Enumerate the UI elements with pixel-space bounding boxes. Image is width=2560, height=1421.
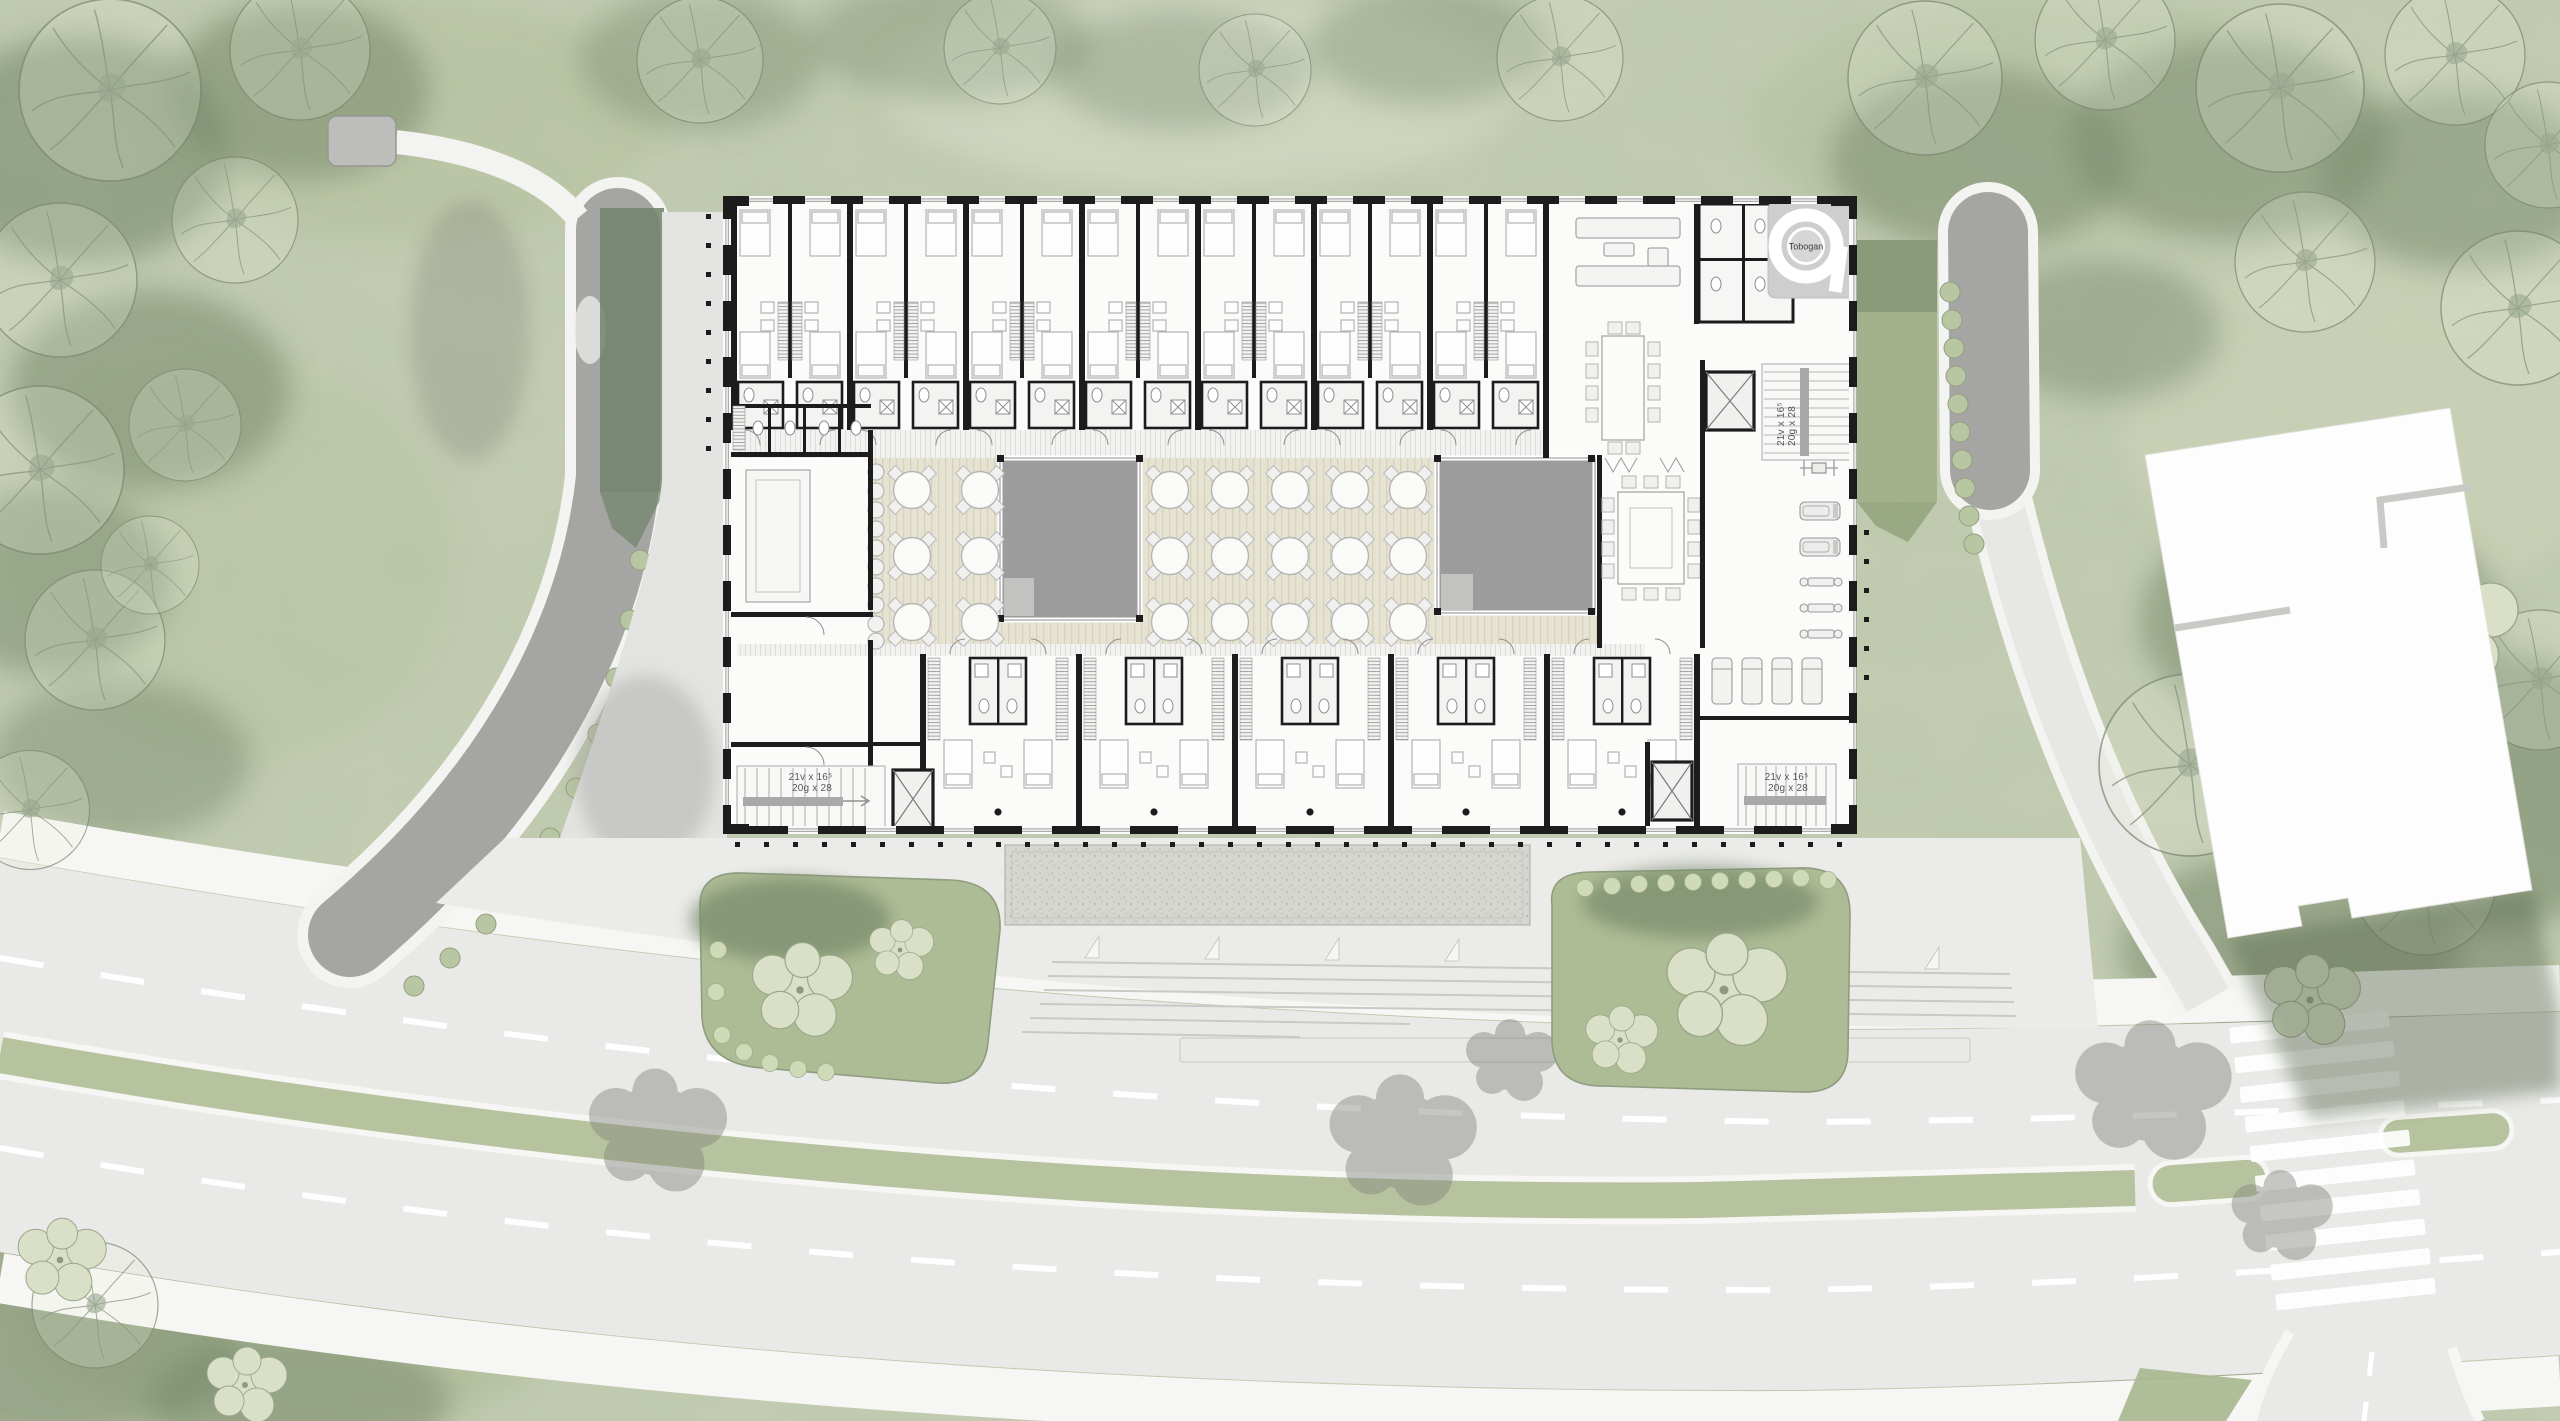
site-plan-canvas: Tobogan 21v x 16⁵ 20g x 28 — [0, 0, 2560, 1421]
stair-note-upper: 21v x 16⁵ 20g x 28 — [1776, 399, 1798, 446]
site-plan-page: Tobogan 21v x 16⁵ 20g x 28 — [0, 0, 2560, 1421]
dining-tables — [888, 466, 1433, 647]
tree-shadow-on-driveway — [410, 200, 530, 460]
stair-lower-right: 21v x 16⁵ 20g x 28 — [1738, 764, 1836, 832]
shelter-structure — [328, 116, 396, 166]
stair-lower-left: 21v x 16⁵ 20g x 28 — [737, 766, 885, 832]
gravel-band — [1005, 845, 1530, 925]
courtyard-void-1 — [997, 455, 1143, 622]
main-building: Tobogan 21v x 16⁵ 20g x 28 — [706, 196, 1869, 847]
slide-label: Tobogan — [1789, 242, 1824, 252]
stair-upper-right: 21v x 16⁵ 20g x 28 — [1762, 364, 1852, 460]
hedge-block — [600, 208, 664, 492]
stair-note-lower-left: 21v x 16⁵ 20g x 28 — [789, 772, 836, 794]
stair-note-lower-right: 21v x 16⁵ 20g x 28 — [1765, 772, 1812, 794]
courtyard-void-2 — [1434, 455, 1595, 615]
spiral-slide: Tobogan — [1768, 202, 1854, 298]
kitchen-room — [746, 470, 810, 602]
